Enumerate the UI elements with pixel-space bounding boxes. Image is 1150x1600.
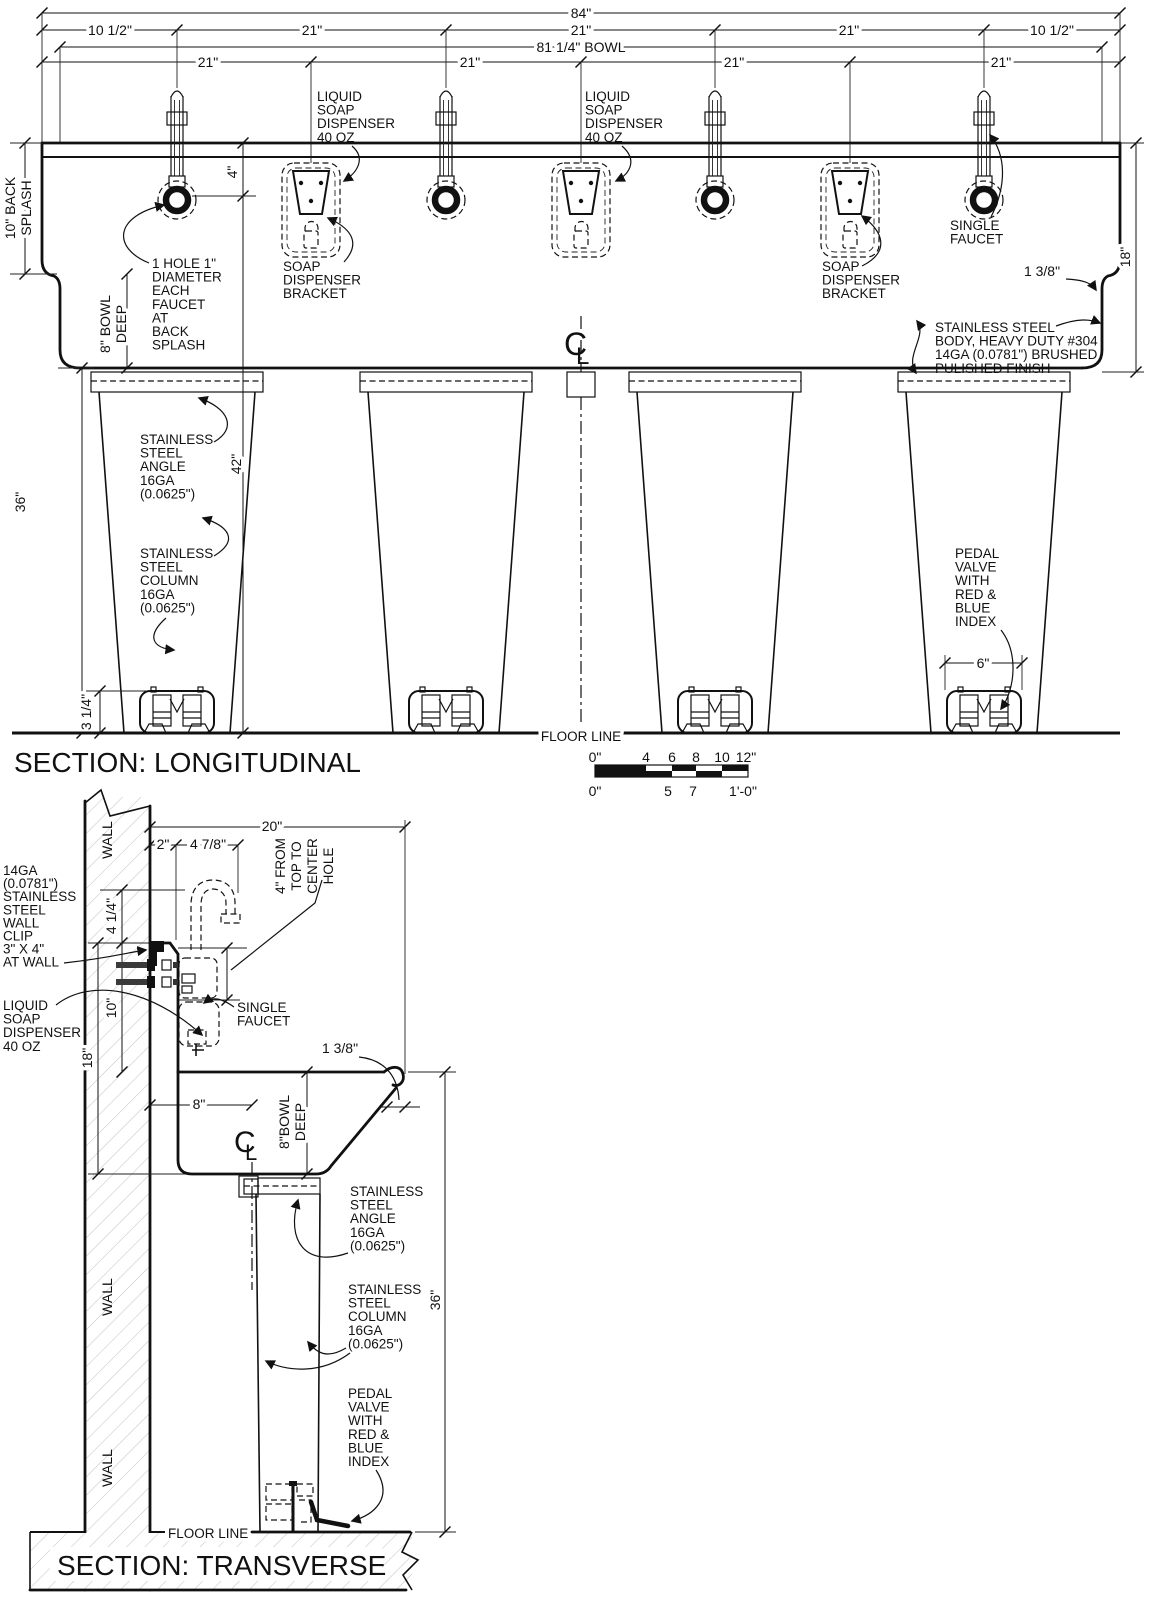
label-angle-t: STAINLESSSTEELANGLE16GA(0.0625"): [350, 1184, 423, 1253]
sink-shop-drawing: 84" 10 1/2" 21" 21" 21" 10 1/2" 81 1/4" …: [0, 0, 1150, 1600]
hole-note-l1: 4" FROM: [273, 838, 288, 894]
scale-tick: 0": [589, 749, 602, 765]
dim-8-label: 8": [193, 1096, 206, 1112]
wall-label: WALL: [99, 1278, 115, 1316]
dim-bowl-deep: 8" BOWL DEEP: [97, 269, 133, 374]
dim-36-t: 36": [408, 1067, 456, 1538]
scale-tick: 8: [692, 749, 700, 765]
left-rolled-edge: [42, 143, 80, 368]
dim-2-and-478: 2" 4 7/8": [145, 836, 244, 940]
scale-tick: 0": [589, 783, 602, 799]
wall-label: WALL: [99, 821, 115, 859]
label-single-faucet: SINGLEFAUCET: [950, 218, 1003, 247]
label-pedal-t: PEDALVALVEWITHRED &BLUEINDEX: [348, 1386, 393, 1469]
dim-total-width: 84": [571, 5, 592, 21]
dim-414-label: 4 1/4": [103, 898, 119, 934]
dim-bay: 21": [839, 22, 860, 38]
label-soap-dispenser-a: LIQUIDSOAPDISPENSER40 OZ: [317, 89, 395, 145]
dim-21: 21": [724, 54, 745, 70]
dim-36: 36": [12, 363, 94, 739]
dim-36-label: 36": [12, 492, 28, 513]
soap-dispenser-3: [821, 163, 879, 257]
dim-back-splash-l2: SPLASH: [18, 180, 34, 235]
dim-18-label: 18": [1117, 247, 1133, 268]
dim-20-label: 20": [262, 818, 283, 834]
dim-21: 21": [198, 54, 219, 70]
soap-dispenser-dashed: [179, 1002, 219, 1056]
dim-back-splash: 10" BACK SPLASH: [2, 138, 57, 280]
dim-bowl-width: 81 1/4" BOWL: [536, 39, 625, 55]
longitudinal-section: 84" 10 1/2" 21" 21" 21" 10 1/2" 81 1/4" …: [2, 5, 1144, 778]
leg-3: [629, 372, 801, 733]
scale-tick: 6: [668, 749, 676, 765]
floor-line-label: FLOOR LINE: [541, 729, 621, 744]
annotations-longitudinal: LIQUIDSOAPDISPENSER40 OZ LIQUIDSOAPDISPE…: [124, 89, 1100, 709]
center-drain: C L: [564, 316, 595, 726]
dim-2-label: 2": [157, 836, 170, 852]
transverse-section: WALL WALL WALL 20" 2" 4 7/8" 4" FROM TOP…: [3, 790, 456, 1590]
centerline-symbol: C L: [564, 326, 589, 370]
scale-tick: 4: [642, 749, 650, 765]
dim-bowl-deep-l2: DEEP: [113, 305, 129, 343]
dim-row-84: 84": [37, 5, 1126, 21]
dim-21: 21": [991, 54, 1012, 70]
annotations-transverse: 14GA(0.0781")STAINLESSSTEELWALLCLIP3" X …: [3, 863, 423, 1521]
dim-edge-left: 10 1/2": [88, 22, 132, 38]
scale-tick: 7: [689, 783, 697, 799]
scale-bar-graphic: [595, 765, 748, 777]
leg-2: [360, 372, 532, 733]
dim-42: 42": [228, 454, 244, 475]
drain-and-column: [239, 1176, 320, 1532]
hole-note-l3: CENTER: [305, 838, 320, 894]
label-soap-t: LIQUIDSOAPDISPENSER40 OZ: [3, 998, 81, 1054]
dim-pedal-6: 6": [940, 655, 1028, 690]
label-wall-clip: 14GA(0.0781")STAINLESSSTEELWALLCLIP3" X …: [3, 863, 76, 970]
scale-bar: 0" 4 6 8 10 12" 0" 5 7 1'-0": [589, 749, 757, 799]
scale-tick: 1'-0": [729, 783, 757, 799]
label-bracket-b: SOAPDISPENSERBRACKET: [822, 259, 900, 301]
label-faucet-hole: 1 HOLE 1"DIAMETEREACHFAUCETATBACKSPLASH: [152, 256, 222, 353]
dim-bowl-deep-l1: 8" BOWL: [97, 295, 113, 353]
soap-dispenser-2: [552, 163, 610, 257]
soap-dispenser-1: [282, 163, 340, 257]
dim-lip-t-label: 1 3/8": [322, 1040, 358, 1056]
dim-lip: 1 3/8": [1024, 263, 1096, 290]
label-stainless-angle: STAINLESSSTEELANGLE16GA(0.0625"): [140, 432, 213, 501]
dim-36-t-label: 36": [427, 1290, 443, 1311]
dim-lip-label: 1 3/8": [1024, 263, 1060, 279]
dim-row-bowl: 81 1/4" BOWL: [55, 39, 1108, 55]
label-single-faucet-t: SINGLEFAUCET: [237, 1000, 290, 1029]
dim-hole-note: 4" FROM TOP TO CENTER HOLE: [178, 838, 336, 1005]
title-longitudinal: SECTION: LONGITUDINAL: [14, 747, 361, 778]
scale-tick: 10: [714, 749, 730, 765]
dim-18t-label: 18": [79, 1048, 95, 1069]
label-stainless-column: STAINLESSSTEELCOLUMN16GA(0.0625"): [140, 546, 213, 615]
faucet-3: [696, 91, 734, 219]
label-pedal-valve: PEDALVALVEWITHRED &BLUEINDEX: [955, 546, 1000, 629]
dim-bay: 21": [302, 22, 323, 38]
dim-21: 21": [460, 54, 481, 70]
centerline-symbol-t: C L: [234, 1126, 257, 1165]
floor-line-t-label: FLOOR LINE: [168, 1526, 248, 1541]
dim-pedal-height-label: 3 1/4": [78, 694, 94, 730]
faucet-2: [427, 91, 465, 219]
dim-bowl-deep-t: 8"BOWL DEEP: [276, 1067, 313, 1180]
dim-bay: 21": [571, 22, 592, 38]
scale-tick: 5: [664, 783, 672, 799]
faucet-4: [965, 91, 1003, 219]
faucet-1: [158, 91, 196, 219]
title-transverse: SECTION: TRANSVERSE: [57, 1550, 386, 1581]
wall-label: WALL: [99, 1449, 115, 1487]
dim-478-label: 4 7/8": [190, 836, 226, 852]
hole-note-l4: HOLE: [321, 848, 336, 885]
centerline-l: L: [245, 1140, 257, 1165]
dim-bowl-deep-t-l1: 8"BOWL: [276, 1095, 292, 1149]
dim-10-label: 10": [103, 998, 119, 1019]
label-bracket-a: SOAPDISPENSERBRACKET: [283, 259, 361, 301]
centerline-l: L: [576, 343, 589, 370]
dim-pedal-height: 3 1/4": [78, 686, 147, 739]
dim-faucet-offset: 4": [224, 166, 240, 179]
label-soap-dispenser-b: LIQUIDSOAPDISPENSER40 OZ: [585, 89, 663, 145]
dim-bowl-deep-t-l2: DEEP: [292, 1103, 308, 1141]
dim-back-splash-l1: 10" BACK: [2, 176, 18, 239]
floor-t: FLOOR LINE SECTION: TRANSVERSE: [30, 1526, 418, 1590]
floor-line: FLOOR LINE: [12, 729, 1120, 744]
scale-tick: 12": [736, 749, 757, 765]
dim-row-faucet-spacing: 10 1/2" 21" 21" 21" 10 1/2": [37, 22, 1126, 38]
faucet-gooseneck-dashed: [179, 880, 240, 998]
label-column-t: STAINLESSSTEELCOLUMN16GA(0.0625"): [348, 1282, 421, 1351]
dim-edge-right: 10 1/2": [1030, 22, 1074, 38]
dim-6-label: 6": [977, 655, 990, 671]
dim-18: 18": [1102, 138, 1144, 378]
dim-8: 8" C L: [145, 1096, 258, 1290]
hole-note-l2: TOP TO: [289, 841, 304, 890]
